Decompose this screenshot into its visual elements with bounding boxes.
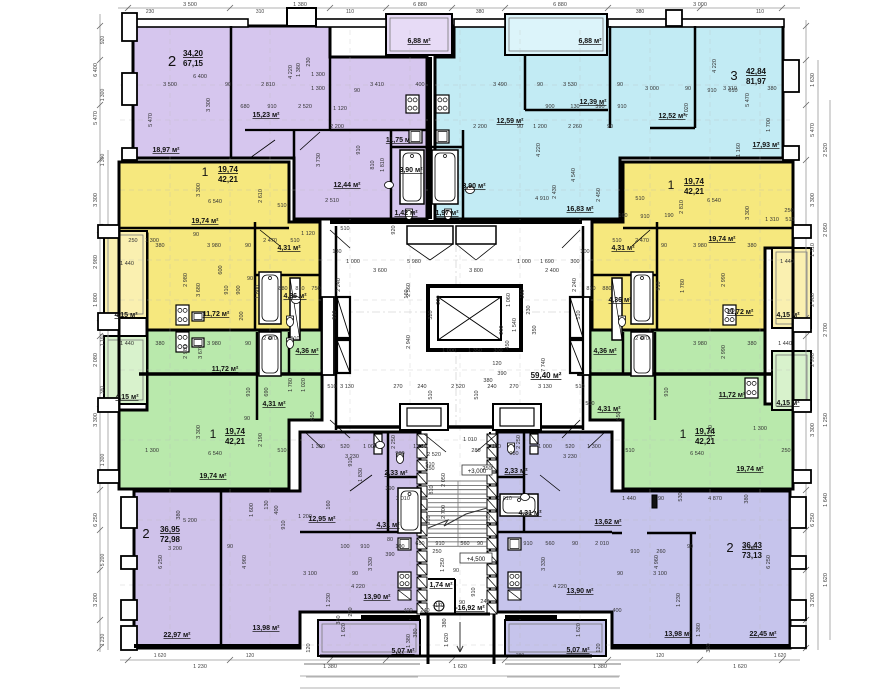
svg-text:3,90 м²: 3,90 м²: [462, 183, 486, 190]
svg-text:4,31 м²: 4,31 м²: [611, 245, 635, 252]
svg-text:1 000: 1 000: [517, 259, 531, 265]
svg-text:1 600: 1 600: [249, 503, 255, 517]
svg-text:3 300: 3 300: [810, 193, 816, 207]
svg-text:510: 510: [290, 238, 299, 244]
svg-text:4,36 м²: 4,36 м²: [295, 348, 319, 355]
svg-text:4,36 м²: 4,36 м²: [593, 348, 617, 355]
svg-text:310: 310: [256, 9, 265, 15]
svg-text:120: 120: [656, 653, 665, 659]
svg-text:910: 910: [617, 104, 626, 110]
svg-text:90: 90: [193, 232, 199, 238]
svg-text:2 700: 2 700: [441, 505, 447, 519]
svg-text:1 300: 1 300: [311, 72, 325, 78]
svg-text:910: 910: [656, 281, 662, 290]
svg-text:19,74 м²: 19,74 м²: [709, 236, 737, 243]
svg-text:5 200: 5 200: [183, 518, 197, 524]
svg-text:2 980: 2 980: [93, 255, 99, 269]
svg-text:980: 980: [395, 451, 404, 457]
svg-text:2 470: 2 470: [635, 336, 649, 342]
svg-text:42,84: 42,84: [746, 67, 767, 76]
svg-text:2 520: 2 520: [823, 143, 829, 157]
svg-text:1 300: 1 300: [587, 444, 601, 450]
svg-text:510: 510: [576, 310, 582, 319]
svg-text:2 240: 2 240: [336, 278, 342, 292]
svg-text:1 000: 1 000: [538, 444, 552, 450]
svg-text:2 700: 2 700: [823, 323, 829, 337]
svg-text:390: 390: [385, 552, 394, 558]
svg-text:120: 120: [492, 361, 501, 367]
svg-text:230: 230: [306, 57, 312, 66]
svg-text:4,15 м²: 4,15 м²: [776, 312, 800, 319]
svg-text:1 310: 1 310: [765, 217, 779, 223]
svg-text:1 130: 1 130: [413, 444, 427, 450]
svg-text:3 100: 3 100: [653, 571, 667, 577]
svg-text:3 300: 3 300: [745, 206, 751, 220]
svg-text:2 990: 2 990: [721, 273, 727, 287]
svg-text:6 880: 6 880: [413, 2, 427, 8]
svg-text:910: 910: [356, 145, 362, 154]
svg-text:4 960: 4 960: [242, 555, 248, 569]
svg-text:2,33 м²: 2,33 м²: [504, 468, 528, 475]
svg-text:130: 130: [264, 500, 270, 509]
svg-text:120: 120: [246, 653, 255, 659]
svg-text:380: 380: [442, 618, 448, 627]
svg-text:650: 650: [415, 541, 424, 547]
svg-text:3 100: 3 100: [303, 571, 317, 577]
svg-text:100: 100: [340, 544, 349, 550]
svg-text:1 300: 1 300: [100, 454, 106, 467]
svg-text:910: 910: [486, 515, 492, 524]
svg-text:90: 90: [537, 82, 543, 88]
svg-text:900: 900: [236, 285, 242, 294]
svg-text:1 780: 1 780: [680, 279, 686, 293]
svg-text:2 510: 2 510: [325, 198, 339, 204]
svg-text:90: 90: [227, 544, 233, 550]
svg-text:6 250: 6 250: [158, 555, 164, 569]
svg-text:3 680: 3 680: [196, 283, 202, 297]
svg-text:11,72 м²: 11,72 м²: [212, 366, 239, 373]
svg-text:1 690: 1 690: [540, 259, 554, 265]
svg-text:300: 300: [493, 348, 502, 354]
svg-text:2 010: 2 010: [498, 496, 512, 502]
svg-text:1 020: 1 020: [301, 378, 307, 392]
svg-text:1,97 м²: 1,97 м²: [435, 210, 459, 217]
svg-text:1,74 м²: 1,74 м²: [429, 582, 453, 589]
svg-text:2 080: 2 080: [93, 353, 99, 367]
svg-text:3 500: 3 500: [183, 2, 197, 8]
svg-text:90: 90: [607, 124, 613, 130]
svg-text:3 000: 3 000: [645, 86, 659, 92]
svg-text:240: 240: [480, 599, 489, 605]
svg-text:3 300: 3 300: [196, 183, 202, 197]
svg-text:19,74: 19,74: [218, 165, 239, 174]
svg-text:90: 90: [661, 243, 667, 249]
svg-text:380: 380: [413, 628, 419, 637]
svg-text:520: 520: [565, 444, 574, 450]
svg-text:11,72 м²: 11,72 м²: [719, 392, 746, 399]
svg-text:910: 910: [426, 515, 432, 524]
svg-text:510: 510: [785, 217, 794, 223]
svg-text:1 830: 1 830: [358, 468, 364, 482]
svg-text:520: 520: [340, 444, 349, 450]
svg-text:250: 250: [499, 325, 505, 334]
svg-text:13,98 м²: 13,98 м²: [253, 625, 281, 632]
svg-text:2 520: 2 520: [427, 452, 441, 458]
svg-text:4,31 м²: 4,31 м²: [277, 245, 301, 252]
svg-text:2: 2: [726, 540, 733, 555]
svg-text:5 470: 5 470: [810, 123, 816, 137]
svg-text:19,74: 19,74: [225, 427, 246, 436]
svg-text:12,52 м²: 12,52 м²: [659, 113, 687, 120]
svg-text:1 620: 1 620: [154, 653, 167, 659]
svg-text:380: 380: [767, 86, 776, 92]
svg-text:90: 90: [459, 600, 465, 606]
svg-text:6 250: 6 250: [93, 513, 99, 527]
svg-text:3 980: 3 980: [207, 243, 221, 249]
svg-text:510: 510: [428, 390, 434, 399]
svg-text:19,74 м²: 19,74 м²: [200, 473, 228, 480]
svg-text:1 310: 1 310: [810, 243, 816, 257]
svg-text:750: 750: [311, 286, 320, 292]
svg-text:4,31 м²: 4,31 м²: [518, 510, 542, 517]
svg-text:2 250: 2 250: [516, 435, 522, 449]
svg-text:3 490: 3 490: [493, 82, 507, 88]
svg-text:90: 90: [617, 82, 623, 88]
svg-text:510: 510: [635, 196, 644, 202]
svg-text:1 060: 1 060: [506, 293, 512, 307]
svg-text:1 250: 1 250: [440, 558, 446, 572]
svg-text:3 200: 3 200: [743, 546, 757, 552]
svg-text:1 160: 1 160: [736, 143, 742, 157]
svg-text:1 540: 1 540: [512, 318, 518, 332]
svg-text:3 130: 3 130: [538, 384, 552, 390]
svg-text:2 470: 2 470: [635, 238, 649, 244]
svg-text:3 730: 3 730: [316, 153, 322, 167]
svg-text:510: 510: [612, 238, 621, 244]
svg-text:910: 910: [281, 520, 287, 529]
svg-text:2 200: 2 200: [330, 124, 344, 130]
svg-text:19,74: 19,74: [684, 177, 705, 186]
svg-text:120: 120: [306, 643, 312, 652]
svg-text:1 620: 1 620: [576, 623, 582, 637]
svg-text:320: 320: [428, 310, 434, 319]
svg-text:1 300: 1 300: [753, 426, 767, 432]
svg-text:160: 160: [618, 213, 627, 219]
svg-text:1 200: 1 200: [533, 124, 547, 130]
svg-text:2 610: 2 610: [258, 189, 264, 203]
svg-text:380: 380: [476, 9, 485, 15]
svg-text:1: 1: [202, 165, 209, 179]
svg-text:920: 920: [100, 36, 106, 45]
svg-text:42,21: 42,21: [218, 175, 239, 184]
svg-text:4,31 м²: 4,31 м²: [262, 401, 286, 408]
svg-text:90: 90: [453, 568, 459, 574]
svg-text:3 600: 3 600: [373, 268, 387, 274]
svg-text:910: 910: [640, 214, 649, 220]
svg-text:1 230: 1 230: [326, 593, 332, 607]
svg-text:160: 160: [520, 289, 526, 298]
svg-text:1 700: 1 700: [766, 118, 772, 132]
svg-text:380: 380: [747, 243, 756, 249]
svg-text:1 780: 1 780: [288, 378, 294, 392]
svg-text:250: 250: [482, 466, 491, 472]
svg-text:3 200: 3 200: [810, 593, 816, 607]
svg-text:4 220: 4 220: [712, 59, 718, 73]
svg-text:240: 240: [487, 384, 496, 390]
svg-text:1 200: 1 200: [298, 514, 312, 520]
svg-text:4 870: 4 870: [708, 496, 722, 502]
svg-text:350: 350: [532, 325, 538, 334]
svg-text:910: 910: [630, 549, 639, 555]
svg-text:380: 380: [176, 510, 182, 519]
svg-text:510: 510: [327, 384, 336, 390]
svg-text:1: 1: [668, 178, 675, 192]
svg-text:73,13: 73,13: [742, 551, 763, 560]
svg-text:1 000: 1 000: [346, 259, 360, 265]
svg-text:67,15: 67,15: [183, 59, 204, 68]
svg-text:3 200: 3 200: [93, 593, 99, 607]
svg-text:42,21: 42,21: [684, 187, 705, 196]
svg-text:510: 510: [575, 384, 584, 390]
svg-text:1: 1: [210, 427, 217, 441]
svg-text:230: 230: [526, 305, 532, 314]
svg-text:5,07 м²: 5,07 м²: [391, 648, 415, 655]
svg-text:1 300: 1 300: [311, 444, 325, 450]
svg-text:4 220: 4 220: [288, 65, 294, 79]
svg-text:11,72 м²: 11,72 м²: [727, 309, 754, 316]
svg-text:2 990: 2 990: [721, 345, 727, 359]
svg-text:4 910: 4 910: [535, 196, 549, 202]
svg-text:3 300: 3 300: [206, 98, 212, 112]
svg-text:450: 450: [505, 340, 511, 349]
svg-text:1 620: 1 620: [444, 633, 450, 647]
svg-text:1 440: 1 440: [622, 496, 636, 502]
svg-text:910: 910: [707, 88, 716, 94]
svg-text:13,62 м²: 13,62 м²: [595, 519, 623, 526]
svg-text:1 120: 1 120: [333, 106, 347, 112]
svg-text:2 250: 2 250: [391, 435, 397, 449]
svg-text:4 220: 4 220: [351, 584, 365, 590]
svg-text:1 000: 1 000: [363, 444, 377, 450]
svg-text:4 540: 4 540: [571, 168, 577, 182]
svg-text:3 000: 3 000: [693, 2, 707, 8]
svg-text:1 380: 1 380: [406, 634, 412, 648]
svg-text:130: 130: [570, 104, 579, 110]
svg-text:1 800: 1 800: [93, 293, 99, 307]
svg-text:190: 190: [664, 213, 673, 219]
svg-text:2: 2: [168, 53, 176, 70]
svg-text:810: 810: [586, 286, 595, 292]
svg-text:1 230: 1 230: [193, 664, 207, 670]
svg-text:3 300: 3 300: [196, 425, 202, 439]
svg-text:1 380: 1 380: [323, 664, 337, 670]
svg-text:560: 560: [460, 541, 469, 547]
svg-text:510: 510: [277, 203, 286, 209]
svg-text:810: 810: [429, 485, 435, 494]
svg-text:380: 380: [747, 341, 756, 347]
svg-text:72,98: 72,98: [160, 535, 181, 544]
svg-text:1 350: 1 350: [468, 348, 482, 354]
svg-text:6 540: 6 540: [690, 451, 704, 457]
svg-text:270: 270: [393, 384, 402, 390]
svg-text:1 230: 1 230: [676, 593, 682, 607]
svg-text:3: 3: [730, 68, 737, 83]
svg-text:250: 250: [784, 208, 793, 214]
svg-text:1 620: 1 620: [774, 653, 787, 659]
svg-text:1 250: 1 250: [823, 413, 829, 427]
svg-text:3 530: 3 530: [563, 82, 577, 88]
svg-text:2 050: 2 050: [823, 223, 829, 237]
svg-text:910: 910: [246, 387, 252, 396]
svg-text:5 980: 5 980: [407, 259, 421, 265]
svg-text:2 520: 2 520: [298, 104, 312, 110]
svg-text:90: 90: [247, 276, 253, 282]
svg-text:1 130: 1 130: [487, 444, 501, 450]
svg-text:910: 910: [360, 544, 369, 550]
svg-text:2 010: 2 010: [396, 496, 410, 502]
svg-text:90: 90: [245, 243, 251, 249]
svg-text:7 740: 7 740: [541, 358, 547, 372]
svg-text:17,93 м²: 17,93 м²: [753, 142, 781, 149]
svg-text:3 410: 3 410: [370, 82, 384, 88]
svg-text:6 250: 6 250: [810, 513, 816, 527]
svg-text:13,98 м²: 13,98 м²: [665, 631, 693, 638]
svg-text:5 470: 5 470: [93, 111, 99, 125]
svg-text:90: 90: [244, 416, 250, 422]
svg-text:3 330: 3 330: [541, 557, 547, 571]
svg-text:1 300: 1 300: [100, 154, 106, 167]
svg-text:3 670: 3 670: [198, 345, 204, 359]
svg-text:1 630: 1 630: [810, 73, 816, 87]
svg-text:3 500: 3 500: [163, 82, 177, 88]
svg-text:1 120: 1 120: [301, 231, 315, 237]
svg-text:3,90 м²: 3,90 м²: [399, 167, 423, 174]
svg-text:1 440: 1 440: [120, 341, 134, 347]
svg-text:3 200: 3 200: [168, 546, 182, 552]
svg-text:42,21: 42,21: [225, 437, 246, 446]
svg-text:130: 130: [332, 249, 341, 255]
svg-text:400: 400: [415, 82, 424, 88]
svg-text:1: 1: [680, 427, 687, 441]
svg-text:90: 90: [477, 541, 483, 547]
svg-text:880: 880: [278, 286, 287, 292]
svg-text:270: 270: [348, 607, 354, 616]
svg-text:-16,92 м²: -16,92 м²: [455, 605, 485, 612]
svg-text:2 470: 2 470: [263, 238, 277, 244]
svg-text:400: 400: [274, 505, 280, 514]
svg-text:2 980: 2 980: [183, 345, 189, 359]
svg-text:920: 920: [391, 225, 397, 234]
svg-text:4 220: 4 220: [536, 143, 542, 157]
svg-text:250: 250: [781, 448, 790, 454]
svg-text:11,72 м²: 11,72 м²: [203, 311, 230, 318]
svg-text:19,74 м²: 19,74 м²: [737, 466, 765, 473]
svg-text:910: 910: [523, 541, 532, 547]
svg-text:2 520: 2 520: [451, 384, 465, 390]
svg-text:390: 390: [385, 486, 394, 492]
svg-text:81,97: 81,97: [746, 77, 767, 86]
svg-text:1 300: 1 300: [311, 86, 325, 92]
svg-text:90: 90: [617, 571, 623, 577]
svg-text:300: 300: [570, 259, 579, 265]
svg-text:4,15 м²: 4,15 м²: [115, 394, 139, 401]
svg-text:4 960: 4 960: [654, 555, 660, 569]
svg-text:1 380: 1 380: [296, 63, 302, 77]
svg-text:390: 390: [595, 104, 604, 110]
svg-text:12,95 м²: 12,95 м²: [309, 516, 337, 523]
svg-text:4,36 м²: 4,36 м²: [608, 297, 632, 304]
svg-text:510: 510: [290, 336, 299, 342]
svg-text:510: 510: [332, 310, 338, 319]
svg-text:90: 90: [354, 88, 360, 94]
svg-text:2 810: 2 810: [679, 200, 685, 214]
svg-text:110: 110: [346, 9, 354, 15]
svg-text:910: 910: [435, 541, 444, 547]
svg-text:230: 230: [146, 9, 155, 15]
svg-text:3 230: 3 230: [563, 454, 577, 460]
svg-text:11,75 м: 11,75 м: [386, 137, 410, 144]
svg-text:6,88 м²: 6,88 м²: [578, 38, 602, 45]
svg-text:4 220: 4 220: [553, 584, 567, 590]
svg-text:90: 90: [658, 496, 664, 502]
svg-text:4 020: 4 020: [684, 103, 690, 117]
svg-text:13,90 м²: 13,90 м²: [567, 588, 595, 595]
svg-text:1 800: 1 800: [255, 285, 261, 299]
svg-text:3 330: 3 330: [368, 557, 374, 571]
svg-text:220: 220: [436, 295, 442, 304]
svg-text:2 980: 2 980: [810, 293, 816, 307]
svg-text:510: 510: [277, 448, 286, 454]
svg-text:2 400: 2 400: [545, 268, 559, 274]
svg-text:+4,500: +4,500: [467, 557, 486, 563]
svg-text:1 380: 1 380: [593, 664, 607, 670]
svg-text:2 940: 2 940: [406, 335, 412, 349]
svg-text:900: 900: [545, 104, 554, 110]
svg-text:4,15 м²: 4,15 м²: [776, 400, 800, 407]
svg-text:510: 510: [340, 226, 349, 232]
svg-text:380: 380: [155, 243, 164, 249]
svg-text:4,36 м²: 4,36 м²: [283, 293, 307, 300]
svg-text:120: 120: [596, 643, 602, 652]
svg-text:13,90 м²: 13,90 м²: [364, 594, 392, 601]
svg-text:5,07 м²: 5,07 м²: [566, 647, 590, 654]
svg-text:110: 110: [756, 9, 764, 15]
svg-text:90: 90: [572, 541, 578, 547]
svg-text:1 000: 1 000: [442, 348, 456, 354]
svg-text:650: 650: [616, 411, 622, 420]
svg-text:16,83 м²: 16,83 м²: [567, 206, 595, 213]
svg-text:160: 160: [326, 500, 332, 509]
svg-text:1 620: 1 620: [823, 573, 829, 587]
svg-text:910: 910: [471, 587, 477, 596]
svg-text:1 380: 1 380: [696, 623, 702, 637]
svg-text:90: 90: [245, 341, 251, 347]
svg-text:260: 260: [656, 549, 665, 555]
svg-text:240: 240: [420, 608, 429, 614]
svg-text:510: 510: [474, 390, 480, 399]
svg-text:1 620: 1 620: [453, 664, 467, 670]
svg-text:3 800: 3 800: [469, 268, 483, 274]
svg-text:380: 380: [100, 386, 106, 395]
svg-text:1 440: 1 440: [778, 341, 792, 347]
svg-text:6 250: 6 250: [766, 555, 772, 569]
svg-text:1,42 м²: 1,42 м²: [394, 210, 418, 217]
svg-text:1 300: 1 300: [145, 448, 159, 454]
svg-text:+170: +170: [432, 603, 443, 609]
svg-text:90: 90: [352, 571, 358, 577]
svg-text:3 980: 3 980: [207, 341, 221, 347]
svg-text:2 430: 2 430: [552, 185, 558, 199]
